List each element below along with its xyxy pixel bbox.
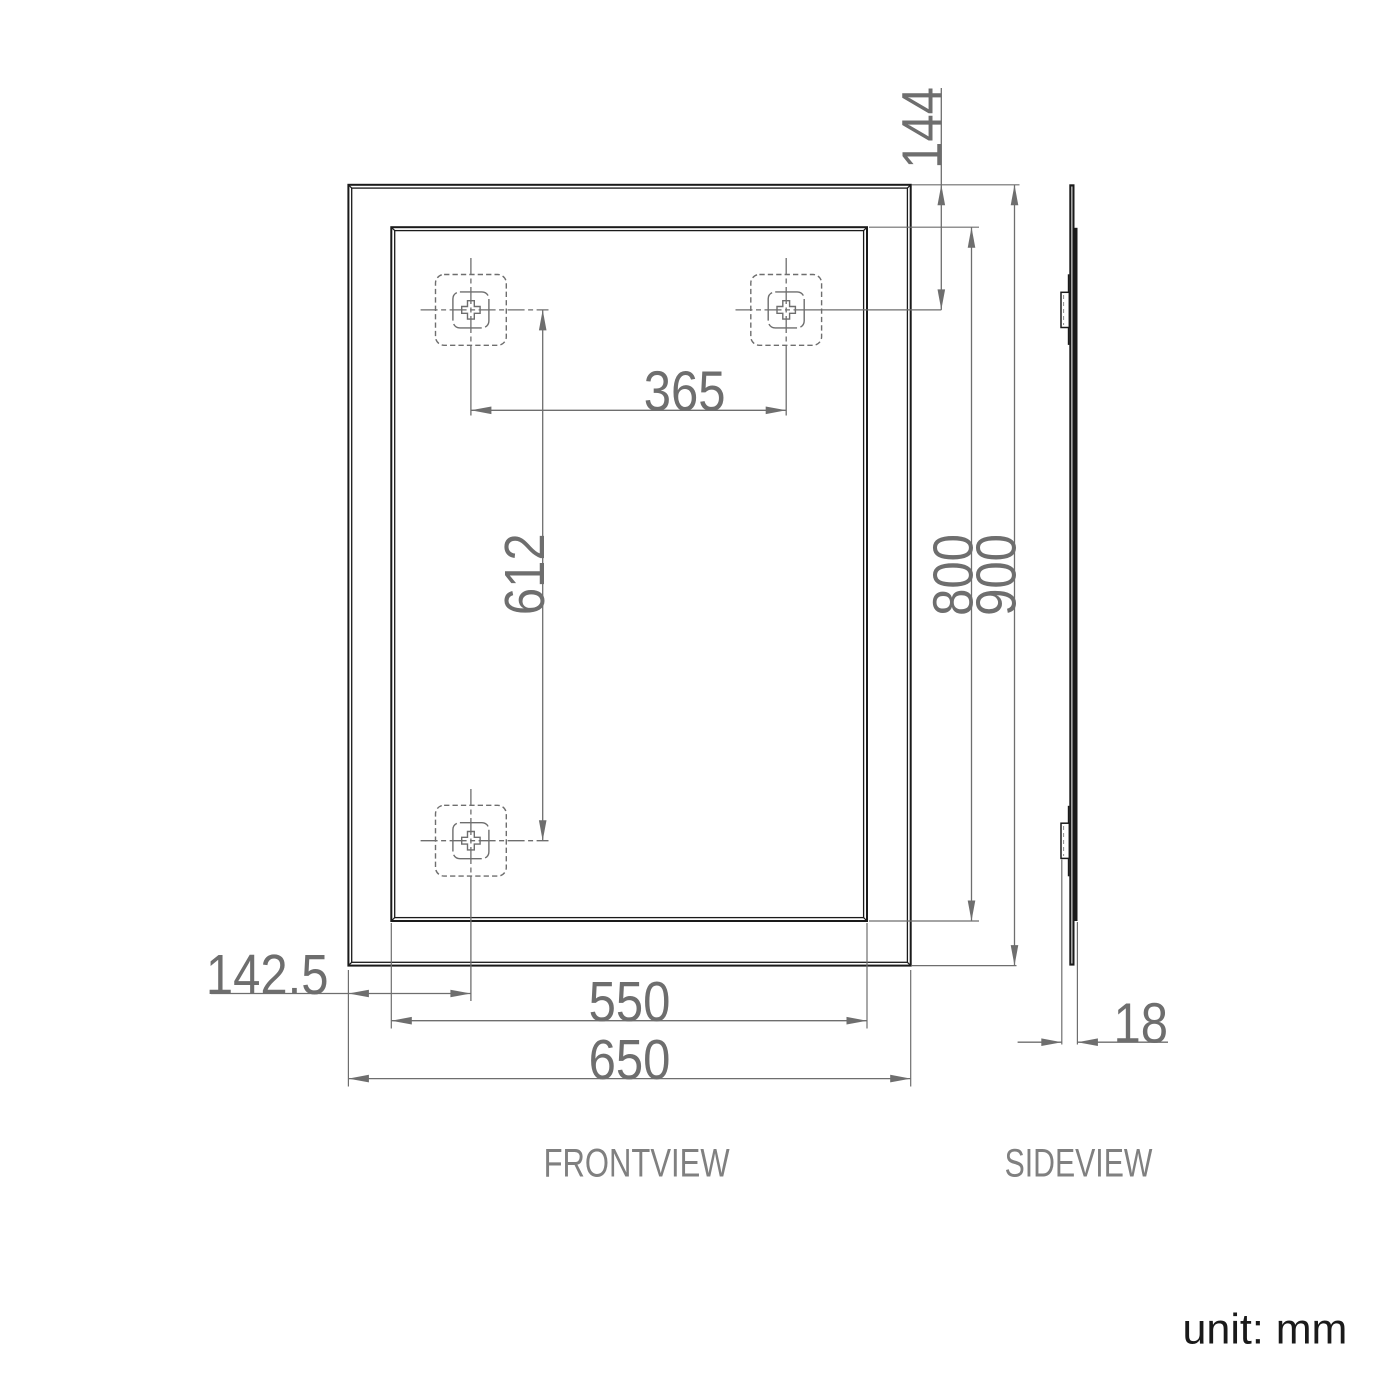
svg-text:144: 144 — [891, 87, 954, 169]
svg-text:365: 365 — [644, 360, 726, 423]
svg-text:FRONTVIEW: FRONTVIEW — [544, 1141, 730, 1185]
svg-text:900: 900 — [965, 534, 1028, 616]
svg-text:SIDEVIEW: SIDEVIEW — [1005, 1141, 1153, 1185]
svg-text:650: 650 — [589, 1029, 671, 1092]
svg-text:550: 550 — [589, 971, 671, 1034]
svg-text:unit: mm: unit: mm — [1183, 1306, 1348, 1354]
svg-text:612: 612 — [494, 533, 557, 615]
svg-text:142.5: 142.5 — [206, 943, 329, 1006]
svg-text:18: 18 — [1113, 992, 1168, 1055]
